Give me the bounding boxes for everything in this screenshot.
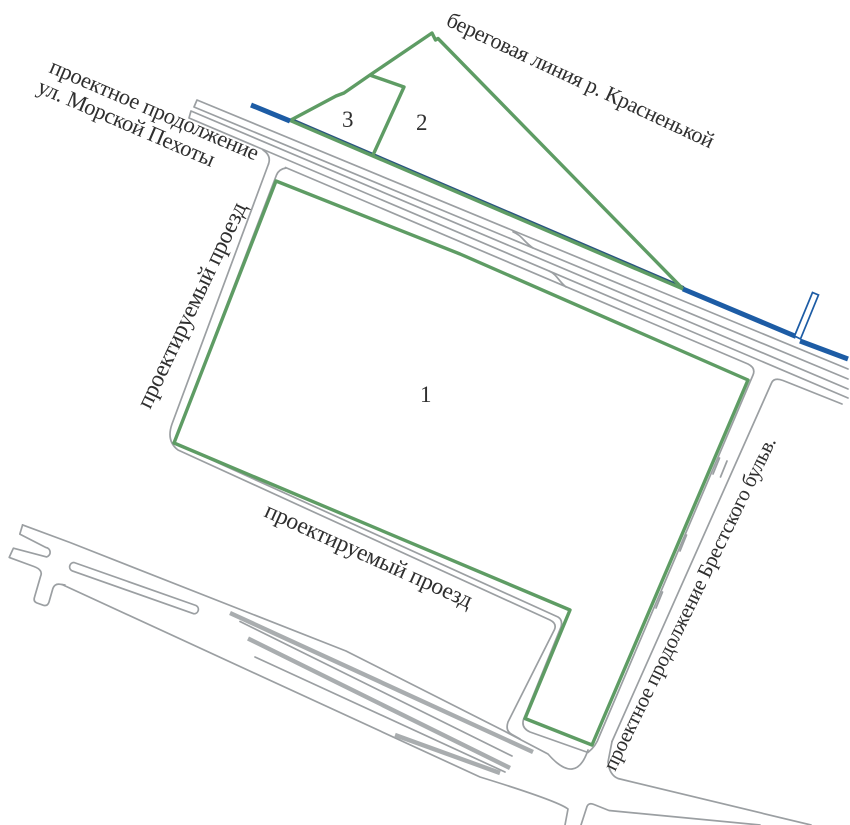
svg-text:3: 3 [342,107,353,132]
svg-text:2: 2 [416,110,427,135]
svg-text:1: 1 [420,382,431,407]
